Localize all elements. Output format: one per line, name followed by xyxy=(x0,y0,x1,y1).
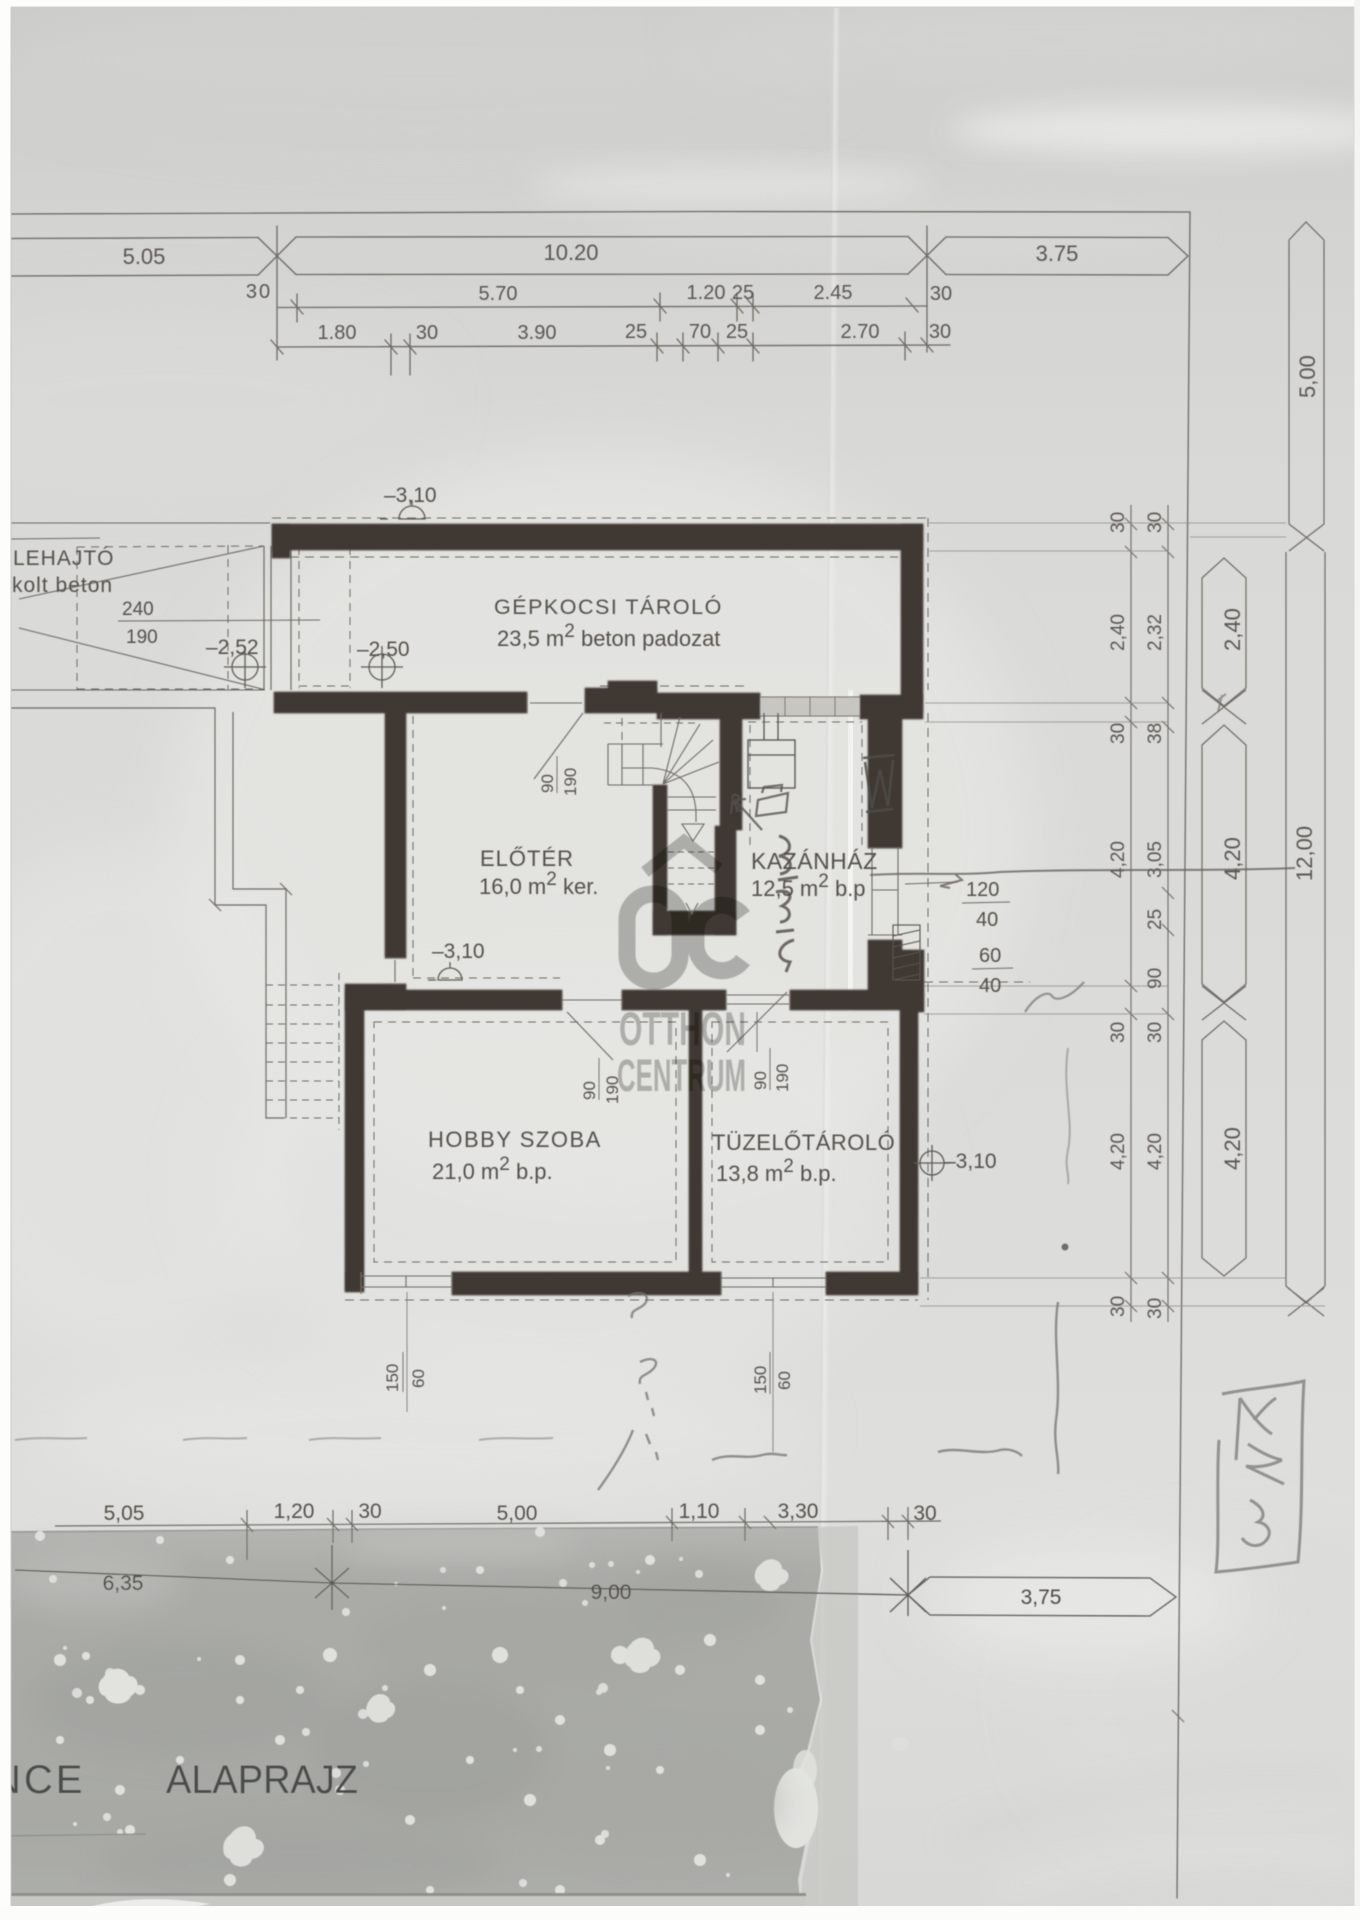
svg-text:70: 70 xyxy=(689,321,711,343)
svg-text:4,20: 4,20 xyxy=(1220,837,1245,880)
svg-text:25: 25 xyxy=(732,282,754,304)
svg-text:30: 30 xyxy=(1108,723,1129,744)
svg-text:kolt beton: kolt beton xyxy=(12,574,113,597)
svg-text:2,40: 2,40 xyxy=(1220,608,1245,651)
svg-text:90: 90 xyxy=(1145,968,1166,989)
svg-text:CENTRUM: CENTRUM xyxy=(617,1050,746,1101)
svg-text:HOBBY SZOBA: HOBBY SZOBA xyxy=(428,1127,602,1152)
svg-text:30: 30 xyxy=(358,1500,381,1523)
svg-text:6,35: 6,35 xyxy=(103,1572,144,1595)
svg-text:30: 30 xyxy=(1108,1296,1129,1317)
svg-text:2,40: 2,40 xyxy=(1108,614,1129,651)
svg-text:2,32: 2,32 xyxy=(1145,614,1166,651)
svg-text:–2,50: –2,50 xyxy=(357,638,410,661)
svg-text:30: 30 xyxy=(1145,1298,1166,1319)
svg-text:25: 25 xyxy=(625,321,647,343)
svg-text:4,20: 4,20 xyxy=(1108,1133,1129,1170)
svg-text:38: 38 xyxy=(1145,723,1166,744)
svg-text:4,20: 4,20 xyxy=(1145,1133,1166,1170)
svg-text:12,5 m2 b.p: 12,5 m2 b.p xyxy=(751,871,866,901)
svg-text:30: 30 xyxy=(1145,512,1166,533)
svg-text:ELŐTÉR: ELŐTÉR xyxy=(480,846,574,871)
svg-text:30: 30 xyxy=(1145,1022,1166,1043)
svg-text:90: 90 xyxy=(751,1071,770,1090)
svg-text:5,00: 5,00 xyxy=(1295,355,1320,398)
svg-text:OTTHON: OTTHON xyxy=(619,1002,746,1055)
svg-text:4,20: 4,20 xyxy=(1108,841,1129,878)
svg-text:2.70: 2.70 xyxy=(841,321,880,343)
svg-text:30: 30 xyxy=(246,281,272,303)
svg-text:40: 40 xyxy=(976,909,998,931)
svg-text:1.20: 1.20 xyxy=(687,282,726,304)
svg-text:3,30: 3,30 xyxy=(778,1500,819,1523)
svg-text:–2,52: –2,52 xyxy=(206,636,259,659)
svg-text:90: 90 xyxy=(538,774,557,793)
svg-text:190: 190 xyxy=(561,768,580,796)
svg-text:9,00: 9,00 xyxy=(591,1581,632,1604)
svg-text:5.05: 5.05 xyxy=(123,244,166,269)
svg-text:240: 240 xyxy=(122,599,154,620)
svg-text:–3,10: –3,10 xyxy=(432,940,485,963)
svg-text:30: 30 xyxy=(913,1502,936,1525)
svg-text:16,0 m2 ker.: 16,0 m2 ker. xyxy=(479,869,598,899)
svg-text:1.80: 1.80 xyxy=(318,322,357,344)
svg-text:KAZÁNHÁZ: KAZÁNHÁZ xyxy=(751,848,878,874)
svg-text:GÉPKOCSI TÁROLÓ: GÉPKOCSI TÁROLÓ xyxy=(494,594,723,619)
svg-text:25: 25 xyxy=(1145,909,1166,930)
svg-text:3,75: 3,75 xyxy=(1021,1586,1062,1609)
svg-text:21,0 m2 b.p.: 21,0 m2 b.p. xyxy=(432,1154,553,1184)
svg-text:30: 30 xyxy=(1108,512,1129,533)
svg-text:30: 30 xyxy=(929,321,951,343)
svg-text:10.20: 10.20 xyxy=(543,240,598,265)
svg-text:–3,10: –3,10 xyxy=(384,484,437,507)
svg-text:60: 60 xyxy=(979,945,1001,967)
svg-text:3,05: 3,05 xyxy=(1145,841,1166,878)
svg-text:NCE: NCE xyxy=(0,1758,85,1802)
svg-text:1,10: 1,10 xyxy=(679,1500,720,1523)
svg-text:13,8 m2 b.p.: 13,8 m2 b.p. xyxy=(716,1156,837,1186)
svg-text:23,5 m2 beton padozat: 23,5 m2 beton padozat xyxy=(497,621,720,651)
svg-text:1,20: 1,20 xyxy=(274,1500,315,1523)
svg-text:30: 30 xyxy=(1108,1022,1129,1043)
svg-text:5,00: 5,00 xyxy=(497,1502,538,1525)
svg-text:190: 190 xyxy=(126,627,158,648)
svg-text:25: 25 xyxy=(726,321,748,343)
svg-text:60: 60 xyxy=(775,1371,794,1390)
svg-text:4,20: 4,20 xyxy=(1220,1127,1245,1170)
svg-text:150: 150 xyxy=(383,1364,402,1392)
svg-text:190: 190 xyxy=(773,1064,792,1092)
svg-text:120: 120 xyxy=(966,879,999,901)
svg-text:5.70: 5.70 xyxy=(479,283,518,305)
svg-text:–3,10: –3,10 xyxy=(944,1150,997,1173)
svg-text:LEHAJTÓ: LEHAJTÓ xyxy=(13,547,115,570)
svg-text:5,05: 5,05 xyxy=(104,1502,145,1525)
svg-text:40: 40 xyxy=(979,975,1001,997)
svg-text:12,00: 12,00 xyxy=(1292,826,1317,881)
svg-text:90: 90 xyxy=(580,1081,599,1100)
svg-text:3.90: 3.90 xyxy=(518,322,557,344)
svg-text:2.45: 2.45 xyxy=(814,282,853,304)
svg-text:ALAPRAJZ: ALAPRAJZ xyxy=(166,1758,358,1802)
svg-text:60: 60 xyxy=(409,1369,428,1388)
svg-text:30: 30 xyxy=(416,322,438,344)
svg-text:TÜZELŐTÁROLÓ: TÜZELŐTÁROLÓ xyxy=(712,1130,895,1155)
svg-text:30: 30 xyxy=(930,283,952,305)
svg-text:3.75: 3.75 xyxy=(1036,241,1079,266)
svg-text:150: 150 xyxy=(751,1366,770,1394)
